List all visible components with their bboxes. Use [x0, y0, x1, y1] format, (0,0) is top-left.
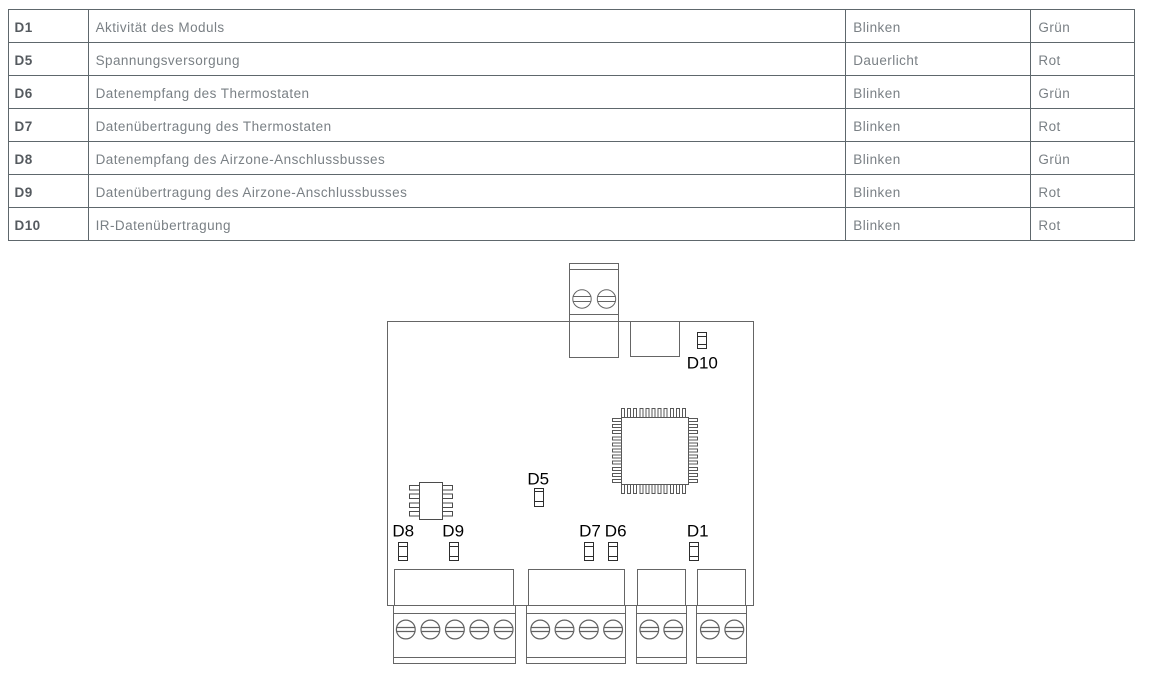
svg-text:D9: D9	[442, 521, 464, 540]
svg-text:D7: D7	[579, 521, 601, 540]
svg-text:D1: D1	[687, 521, 709, 540]
svg-text:D10: D10	[687, 353, 718, 372]
svg-text:D5: D5	[527, 470, 549, 489]
svg-text:D6: D6	[605, 521, 627, 540]
svg-text:D8: D8	[392, 521, 414, 540]
